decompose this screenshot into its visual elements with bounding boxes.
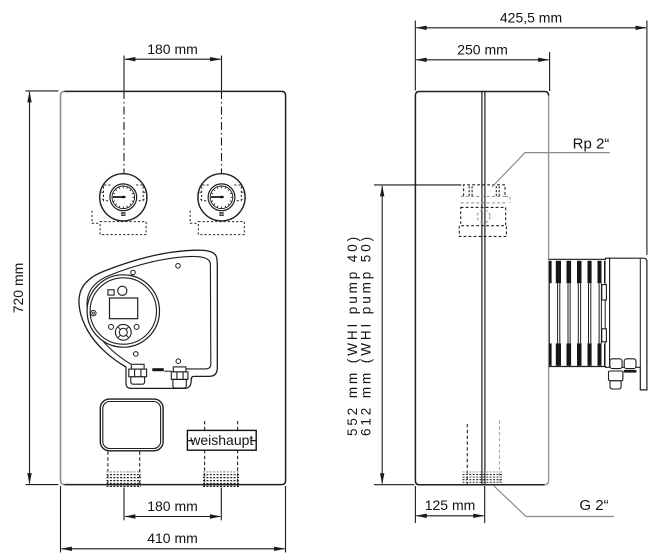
svg-text:125 mm: 125 mm (425, 497, 476, 513)
svg-text:250 mm: 250 mm (457, 42, 508, 58)
svg-text:425,5 mm: 425,5 mm (500, 10, 562, 26)
svg-text:Rp 2“: Rp 2“ (573, 136, 610, 153)
svg-text:180 mm: 180 mm (147, 498, 198, 514)
svg-text:612 mm (WHI pump 50): 612 mm (WHI pump 50) (359, 234, 374, 436)
svg-text:180 mm: 180 mm (147, 41, 198, 57)
svg-text:410 mm: 410 mm (147, 530, 198, 546)
svg-text:G 2“: G 2“ (579, 497, 608, 514)
svg-text:weishaupt: weishaupt (189, 432, 253, 448)
svg-text:720 mm: 720 mm (10, 263, 26, 314)
